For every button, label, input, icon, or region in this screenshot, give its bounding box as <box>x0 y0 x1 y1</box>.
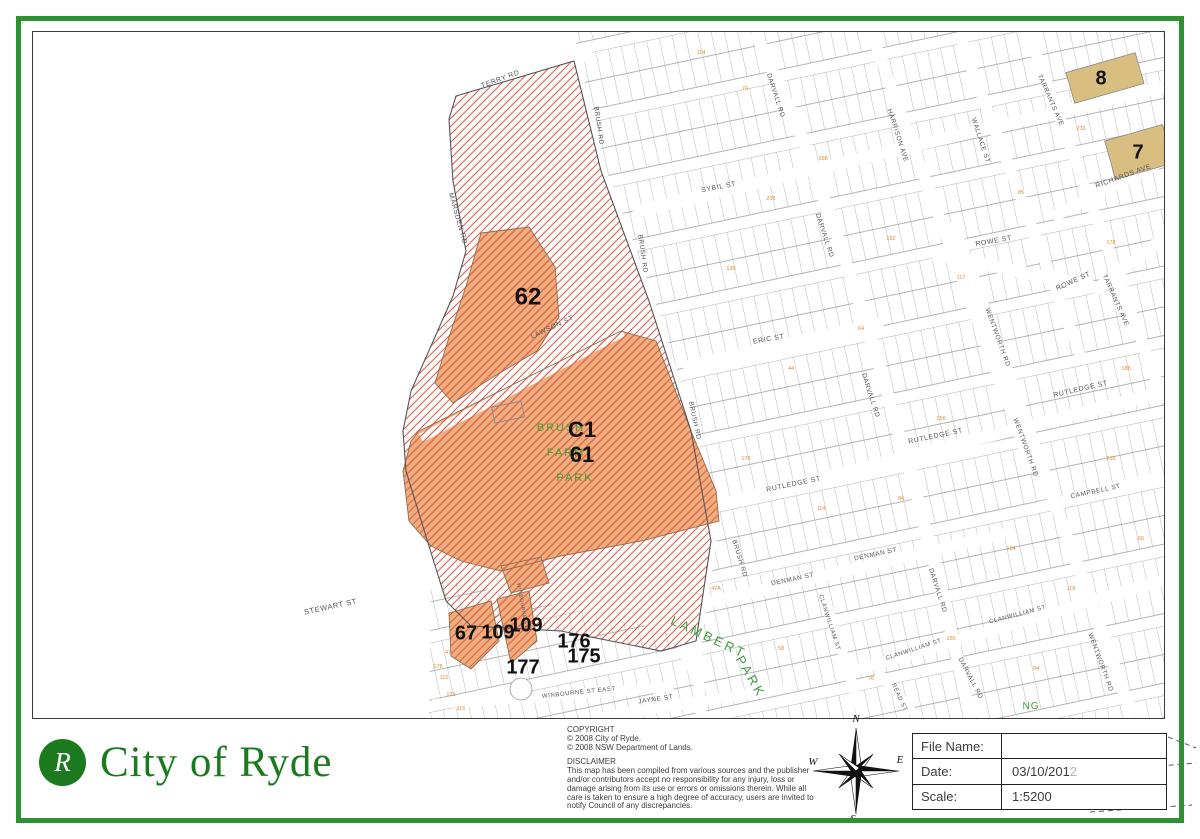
compass-point-dark <box>853 754 873 771</box>
org-name: City of Ryde <box>100 738 332 787</box>
park-label: NG <box>1023 701 1040 712</box>
compass-point-light <box>853 771 873 788</box>
lot-number: 192 <box>886 236 895 242</box>
filename-value <box>1002 734 1166 758</box>
table-row-filename: File Name: <box>913 734 1166 759</box>
city-of-ryde-logo: R City of Ryde <box>39 738 332 787</box>
lot-number: 121 <box>446 692 455 698</box>
lot-number: 150 <box>946 636 955 642</box>
dashed-fragment <box>1168 737 1196 748</box>
filename-label: File Name: <box>913 734 1002 758</box>
compass-point-dark <box>856 768 873 788</box>
zone-number: 62 <box>515 283 542 310</box>
lot-number: 178 <box>1106 240 1115 246</box>
compass-letter-s: S <box>850 813 856 825</box>
disclaimer-text: This map has been compiled from various … <box>567 767 819 811</box>
lot-number: 188 <box>1121 366 1130 372</box>
lot-number: 44 <box>788 366 794 372</box>
table-row-scale: Scale: 1:5200 <box>913 785 1166 809</box>
map-info-table: File Name: Date: 03/10/2012 Scale: 1:520… <box>912 733 1167 810</box>
copyright-line-2: © 2008 NSW Department of Lands. <box>567 744 819 753</box>
cul-de-sac <box>510 678 532 700</box>
lot-number: 74 <box>742 86 748 92</box>
lot-number: 118 <box>1067 586 1076 592</box>
zone-number: 177 <box>506 656 539 678</box>
table-row-date: Date: 03/10/2012 <box>913 759 1166 784</box>
lot-number: 47 <box>445 650 451 656</box>
lot-number: 114 <box>697 50 706 56</box>
lot-number: 117 <box>957 275 966 281</box>
compass-point-light <box>813 765 856 771</box>
lot-number: 176 <box>741 456 750 462</box>
compass-point-dark <box>856 765 899 771</box>
lot-number: 178 <box>433 664 442 670</box>
lot-number: 115 <box>457 706 466 712</box>
compass-point-light <box>856 728 862 771</box>
compass-point-dark <box>856 771 862 814</box>
lot-number: 94 <box>1033 666 1039 672</box>
lot-number: 154 <box>1006 546 1015 552</box>
lot-number: 216 <box>1106 456 1115 462</box>
zone-number: 8 <box>1095 67 1106 89</box>
lot-number: 84 <box>898 496 904 502</box>
lot-number: 233 <box>1076 126 1085 132</box>
zone-number: 175 <box>567 645 600 667</box>
compass-point-light <box>850 771 856 814</box>
compass-rose-icon: NSWE <box>808 713 903 825</box>
compass-point-light <box>839 768 856 788</box>
lot-number: 64 <box>858 326 864 332</box>
lot-number: 205 <box>766 196 775 202</box>
date-label: Date: <box>913 759 1002 783</box>
lot-number: 139 <box>726 266 735 272</box>
lot-number: 58 <box>778 646 784 652</box>
lot-number: 85 <box>1018 190 1024 196</box>
ryde-logo-icon: R <box>39 739 86 786</box>
lot-number: 156 <box>936 416 945 422</box>
lot-number: 47A <box>711 586 721 592</box>
date-value-faded: 2 <box>1070 764 1077 779</box>
date-value: 03/10/2012 <box>1002 759 1166 783</box>
compass-letter-e: E <box>896 754 904 766</box>
logo-letter: R <box>54 747 71 778</box>
compass-point-dark <box>839 771 859 788</box>
zone-number: C1 <box>568 417 596 442</box>
zone-number: 7 <box>1132 141 1143 163</box>
compass-point-dark <box>850 728 856 771</box>
compass-point-light <box>856 754 873 774</box>
zone-number: 67 <box>455 622 477 644</box>
compass-point-dark <box>813 771 856 777</box>
copyright-disclaimer-block: COPYRIGHT © 2008 City of Ryde. © 2008 NS… <box>567 726 819 811</box>
park-label: PARK <box>556 472 593 484</box>
map-svg: TERRY RDMARSDEN RDBRUSH RDBRUSH RDBRUSH … <box>33 32 1164 718</box>
map-page: { "branding": { "logo_letter": "R", "org… <box>0 0 1200 839</box>
zone-number: 61 <box>570 442 594 467</box>
lot-number: 110 <box>440 675 449 681</box>
scale-label: Scale: <box>913 785 1002 809</box>
lot-number: 76 <box>868 676 874 682</box>
map-area: TERRY RDMARSDEN RDBRUSH RDBRUSH RDBRUSH … <box>32 31 1165 719</box>
compass-point-light <box>839 754 859 771</box>
scale-value: 1:5200 <box>1002 785 1166 809</box>
lot-number: 66 <box>1138 536 1144 542</box>
compass-point-dark <box>839 754 856 774</box>
compass-point-light <box>856 771 899 777</box>
zone-number: 109 <box>509 614 542 636</box>
lot-number: 114 <box>817 506 826 512</box>
lot-number: 158 <box>818 156 827 162</box>
